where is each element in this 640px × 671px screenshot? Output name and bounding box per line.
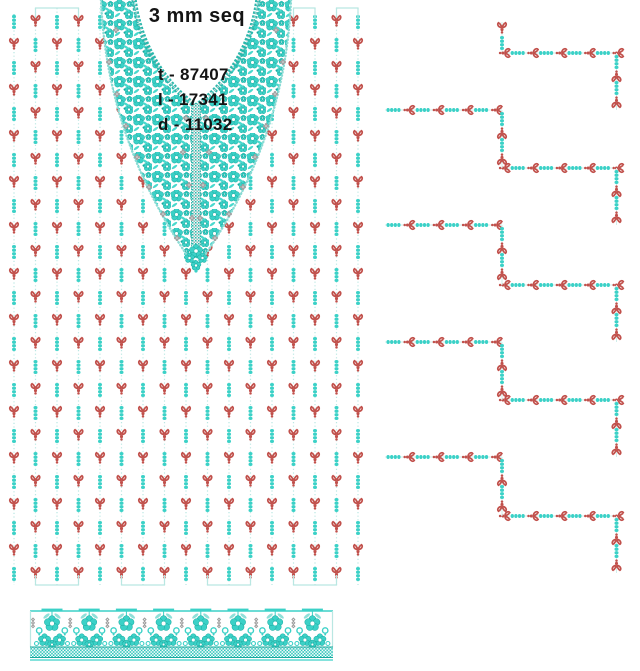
design-artwork xyxy=(0,0,640,671)
staircase-border xyxy=(385,22,623,573)
stat-length: l - 17341 xyxy=(158,87,233,112)
bottom-border-strip xyxy=(30,609,333,660)
embroidery-design-sheet: 3 mm seq t - 87407 l - 17341 d - 11032 xyxy=(0,0,640,671)
design-title: 3 mm seq xyxy=(139,5,255,28)
stat-density: d - 11032 xyxy=(158,112,233,137)
stitch-stats: t - 87407 l - 17341 d - 11032 xyxy=(158,62,233,137)
stat-total-stitches: t - 87407 xyxy=(158,62,233,87)
